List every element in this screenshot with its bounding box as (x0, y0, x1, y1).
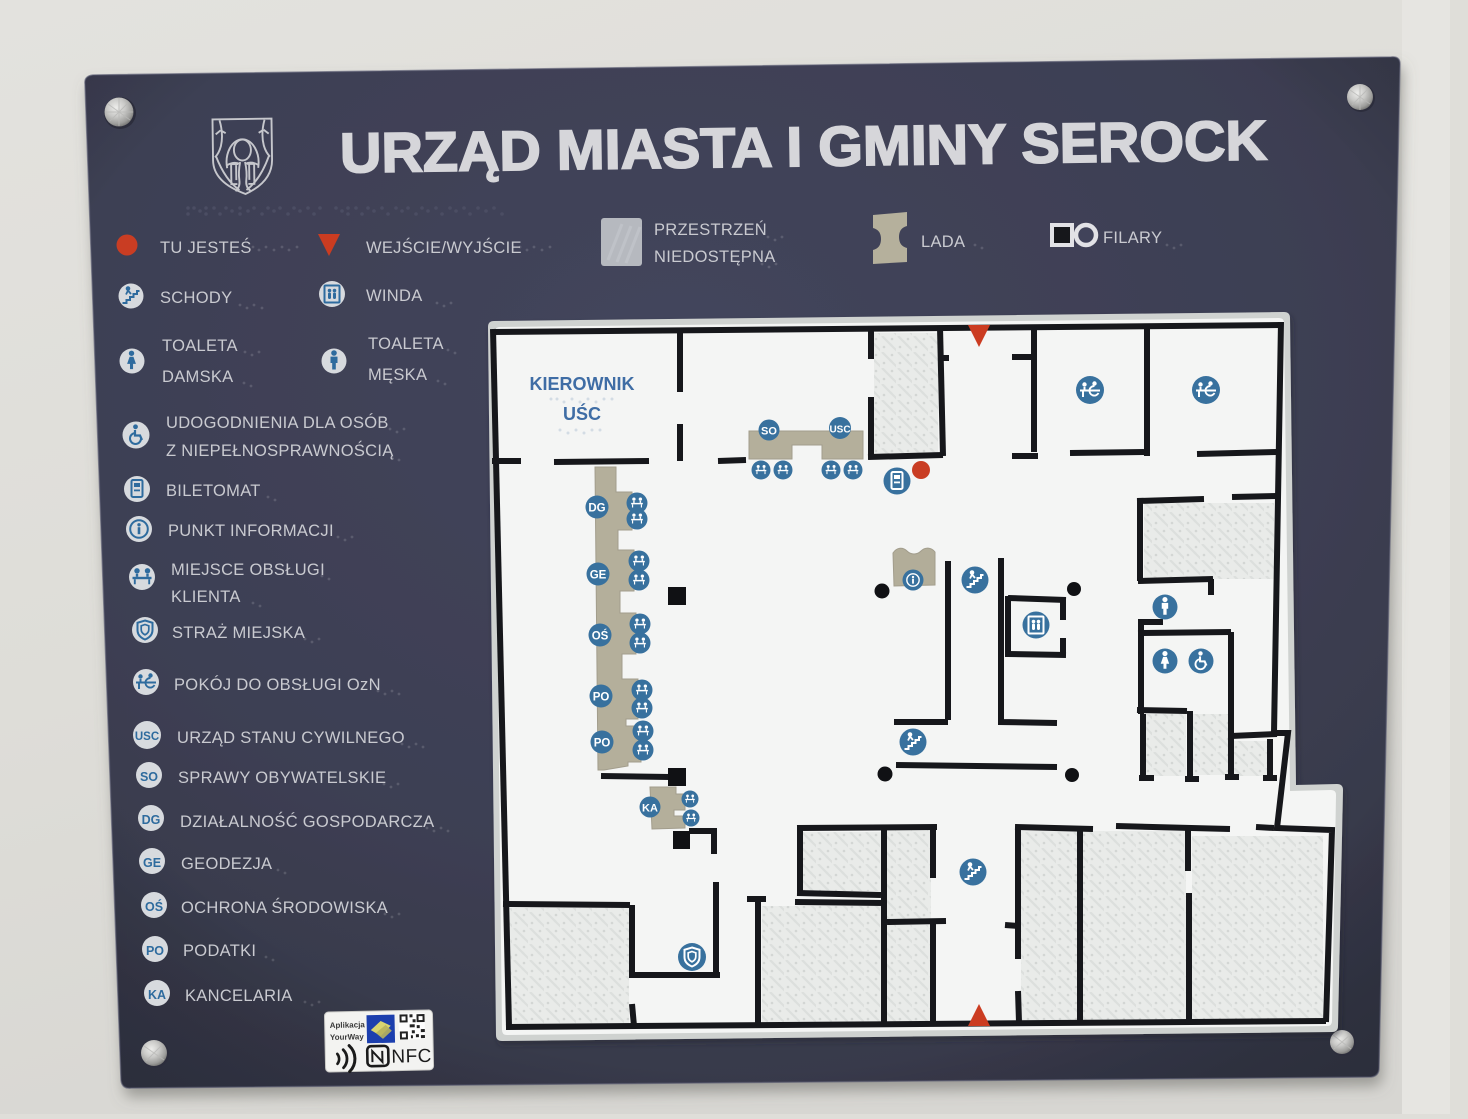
svg-text:YourWay: YourWay (330, 1032, 365, 1042)
svg-text:MĘSKA: MĘSKA (368, 366, 427, 384)
svg-text:KA: KA (642, 803, 658, 815)
svg-text:TU JESTEŚ: TU JESTEŚ (160, 238, 252, 257)
svg-text:TOALETA: TOALETA (162, 337, 238, 355)
svg-text:SCHODY: SCHODY (160, 289, 232, 307)
svg-text:KIEROWNIK: KIEROWNIK (530, 374, 635, 394)
svg-text:Z NIEPEŁNOSPRAWNOŚCIĄ: Z NIEPEŁNOSPRAWNOŚCIĄ (166, 441, 394, 460)
svg-text:GE: GE (590, 570, 607, 582)
svg-text:FILARY: FILARY (1103, 229, 1162, 247)
svg-text:GEODEZJA: GEODEZJA (181, 855, 272, 873)
svg-text:PRZESTRZEŃ: PRZESTRZEŃ (654, 220, 767, 239)
svg-text:POKÓJ DO OBSŁUGI OzN: POKÓJ DO OBSŁUGI OzN (174, 675, 381, 694)
svg-text:WINDA: WINDA (366, 287, 423, 305)
svg-text:UŚC: UŚC (563, 403, 601, 424)
svg-text:DZIAŁALNOŚĆ GOSPODARCZA: DZIAŁALNOŚĆ GOSPODARCZA (180, 812, 434, 831)
svg-text:PO: PO (146, 944, 164, 958)
svg-text:WEJŚCIE/WYJŚCIE: WEJŚCIE/WYJŚCIE (366, 238, 522, 257)
svg-text:NIEDOSTĘPNA: NIEDOSTĘPNA (654, 248, 776, 266)
svg-text:SPRAWY OBYWATELSKIE: SPRAWY OBYWATELSKIE (178, 769, 386, 787)
svg-text:TOALETA: TOALETA (368, 335, 444, 353)
svg-text:PO: PO (593, 692, 610, 704)
svg-text:USC: USC (829, 425, 850, 436)
svg-text:OŚ: OŚ (592, 630, 609, 643)
svg-text:MIEJSCE OBSŁUGI: MIEJSCE OBSŁUGI (171, 561, 325, 579)
svg-text:SO: SO (140, 770, 158, 784)
svg-text:GE: GE (143, 856, 161, 870)
svg-text:OCHRONA ŚRODOWISKA: OCHRONA ŚRODOWISKA (181, 898, 388, 917)
svg-text:PO: PO (594, 738, 611, 750)
svg-text:KA: KA (148, 988, 166, 1002)
svg-text:SO: SO (761, 426, 777, 438)
svg-text:DG: DG (588, 503, 605, 515)
svg-text:UDOGODNIENIA DLA OSÓB: UDOGODNIENIA DLA OSÓB (166, 413, 389, 432)
svg-text:LADA: LADA (921, 233, 965, 251)
svg-text:URZĄD MIASTA I GMINY SEROCK: URZĄD MIASTA I GMINY SEROCK (340, 108, 1268, 184)
svg-text:BILETOMAT: BILETOMAT (166, 482, 261, 500)
svg-text:URZĄD STANU CYWILNEGO: URZĄD STANU CYWILNEGO (177, 729, 405, 747)
svg-text:PODATKI: PODATKI (183, 942, 256, 960)
svg-text:STRAŻ MIEJSKA: STRAŻ MIEJSKA (172, 623, 305, 642)
svg-text:DG: DG (142, 813, 161, 827)
svg-text:KLIENTA: KLIENTA (171, 588, 241, 606)
svg-text:PUNKT INFORMACJI: PUNKT INFORMACJI (168, 522, 334, 540)
svg-text:NFC: NFC (391, 1046, 432, 1068)
svg-text:OŚ: OŚ (145, 899, 163, 914)
svg-text:USC: USC (135, 731, 159, 743)
svg-text:DAMSKA: DAMSKA (162, 368, 233, 386)
svg-text:KANCELARIA: KANCELARIA (185, 987, 293, 1005)
svg-text:Aplikacja: Aplikacja (330, 1020, 366, 1030)
